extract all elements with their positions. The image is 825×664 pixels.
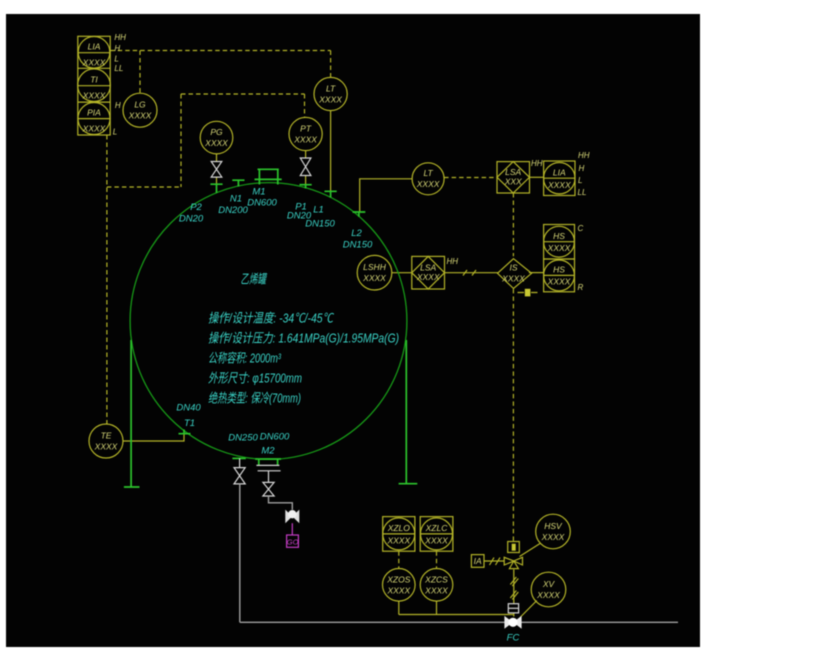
svg-text:HH: HH <box>578 151 590 160</box>
svg-text:XXXX: XXXX <box>318 95 342 105</box>
svg-text:XXXX: XXXX <box>293 135 317 145</box>
svg-text:LSA: LSA <box>505 167 521 177</box>
svg-text:LSHH: LSHH <box>363 262 387 272</box>
svg-text:N1: N1 <box>230 194 242 205</box>
svg-text:LSA: LSA <box>420 263 436 273</box>
svg-text:LT: LT <box>423 168 433 178</box>
svg-text:DN40: DN40 <box>176 403 201 414</box>
svg-text:XXXX: XXXX <box>128 111 152 121</box>
svg-text:C: C <box>578 224 584 233</box>
svg-text:XXXX: XXXX <box>386 586 410 596</box>
svg-text:DN150: DN150 <box>343 240 373 251</box>
svg-text:HS: HS <box>553 231 565 241</box>
svg-text:DN200: DN200 <box>218 205 248 216</box>
svg-text:DN150: DN150 <box>305 219 335 230</box>
svg-text:GO: GO <box>287 538 299 547</box>
svg-text:XXXX: XXXX <box>94 442 118 452</box>
svg-text:L2: L2 <box>351 228 362 239</box>
svg-text:XXXX: XXXX <box>547 277 571 287</box>
svg-text:XXXX: XXXX <box>386 536 410 546</box>
svg-text:IA: IA <box>474 556 482 566</box>
svg-text:LIA: LIA <box>88 42 101 52</box>
svg-text:PIA: PIA <box>87 108 101 118</box>
svg-text:L: L <box>113 128 117 137</box>
svg-text:DN600: DN600 <box>247 198 277 209</box>
svg-text:H: H <box>579 164 585 173</box>
svg-text:XZLC: XZLC <box>425 523 449 533</box>
svg-text:TI: TI <box>90 75 98 85</box>
svg-text:操作/设计压力: 1.641MPa(G)/1.95MPa(G: 操作/设计压力: 1.641MPa(G)/1.95MPa(G) <box>208 331 399 346</box>
svg-text:XXXX: XXXX <box>416 179 440 189</box>
svg-text:XZLO: XZLO <box>387 523 411 533</box>
svg-text:操作/设计温度: -34℃/-45℃: 操作/设计温度: -34℃/-45℃ <box>208 311 335 326</box>
svg-text:R: R <box>578 283 584 292</box>
svg-text:XZCS: XZCS <box>424 575 448 585</box>
svg-text:公称容积: 2000m³: 公称容积: 2000m³ <box>208 351 281 366</box>
svg-text:XXXX: XXXX <box>547 243 571 253</box>
svg-text:L: L <box>114 55 118 64</box>
svg-text:外形尺寸: φ15700mm: 外形尺寸: φ15700mm <box>208 371 302 386</box>
svg-text:XXXX: XXXX <box>424 586 448 596</box>
svg-text:IS: IS <box>509 263 517 273</box>
svg-text:HS: HS <box>553 265 565 275</box>
svg-text:M2: M2 <box>261 446 275 457</box>
svg-text:P2: P2 <box>190 202 202 213</box>
svg-text:XV: XV <box>542 579 556 589</box>
svg-text:HH: HH <box>114 33 126 42</box>
svg-text:L: L <box>578 176 582 185</box>
svg-text:XXXX: XXXX <box>82 124 106 134</box>
svg-text:PT: PT <box>300 124 312 134</box>
svg-text:XXXX: XXXX <box>82 91 106 101</box>
svg-text:DN20: DN20 <box>179 214 204 225</box>
svg-text:DN250: DN250 <box>228 433 258 444</box>
svg-text:XXXX: XXXX <box>362 273 386 283</box>
svg-text:XZOS: XZOS <box>386 575 410 585</box>
svg-text:XXXX: XXXX <box>82 58 106 68</box>
svg-text:XXX: XXX <box>504 177 522 187</box>
svg-text:HH: HH <box>531 159 543 168</box>
svg-text:HH: HH <box>447 257 459 266</box>
svg-text:XXXX: XXXX <box>416 272 440 282</box>
svg-text:M1: M1 <box>252 187 265 198</box>
svg-text:L1: L1 <box>313 205 324 216</box>
svg-text:XXXX: XXXX <box>536 590 560 600</box>
svg-text:H: H <box>114 44 120 53</box>
svg-text:LG: LG <box>134 100 146 110</box>
svg-text:TE: TE <box>101 431 112 441</box>
svg-text:LL: LL <box>578 188 587 197</box>
svg-text:PG: PG <box>210 127 223 137</box>
svg-text:LL: LL <box>114 64 123 73</box>
svg-text:LT: LT <box>326 84 336 94</box>
svg-text:XXXX: XXXX <box>547 180 571 190</box>
svg-text:HSV: HSV <box>544 521 563 531</box>
svg-text:XXXX: XXXX <box>541 532 565 542</box>
svg-text:XXXX: XXXX <box>501 274 525 284</box>
svg-text:FC: FC <box>507 633 520 644</box>
svg-text:XXXX: XXXX <box>424 536 448 546</box>
svg-text:DN600: DN600 <box>260 432 290 443</box>
svg-text:H: H <box>115 101 121 110</box>
svg-text:XXXX: XXXX <box>204 138 228 148</box>
svg-text:绝热类型: 保冷(70mm): 绝热类型: 保冷(70mm) <box>208 391 301 406</box>
svg-text:T1: T1 <box>184 418 195 429</box>
svg-text:LIA: LIA <box>553 168 566 178</box>
svg-text:乙烯罐: 乙烯罐 <box>241 272 268 287</box>
